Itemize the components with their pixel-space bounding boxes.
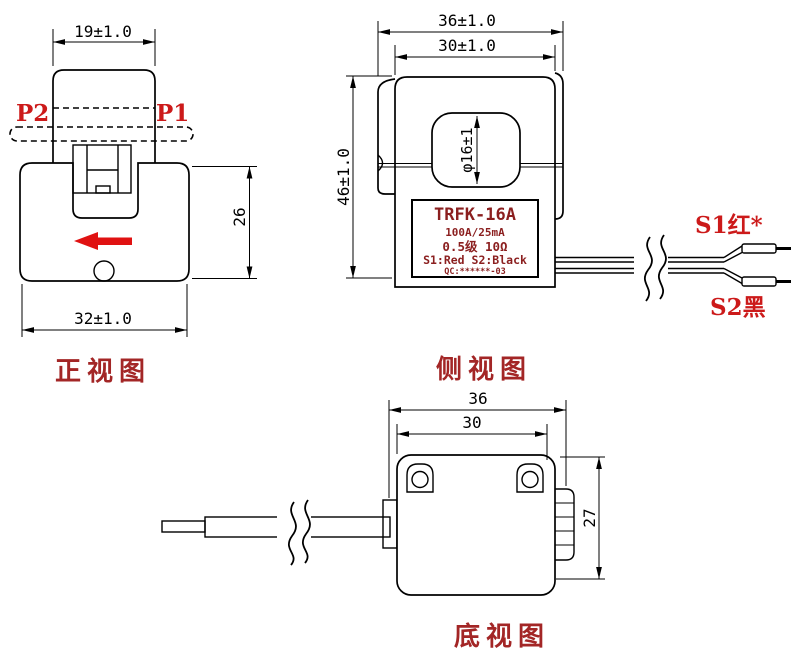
terminal-label-p2: P2 [16, 100, 49, 127]
dim-hole-text: φ16±1 [458, 127, 476, 172]
nameplate-model: TRFK-16A [434, 205, 516, 225]
nameplate: TRFK-16A 100A/25mA 0.5级 10Ω S1:Red S2:Bl… [412, 200, 538, 277]
dim-side-body-width-text: 30±1.0 [438, 36, 496, 55]
dim-bottom-body-width-text: 30 [462, 413, 481, 432]
dim-front-top-width-text: 19±1.0 [74, 22, 132, 41]
hinge-ribs [555, 489, 574, 560]
dim-bottom-overall-width-text: 36 [468, 389, 487, 408]
dim-side-height-text: 46±1.0 [334, 148, 353, 206]
dim-bottom-body-width: 30 [397, 413, 547, 460]
dim-front-bottom-width: 32±1.0 [22, 284, 187, 337]
dim-bottom-height-text: 27 [580, 508, 599, 527]
wire-label-s2: S2黑 [710, 294, 766, 321]
dim-front-height: 26 [192, 167, 257, 279]
cable-tip [162, 521, 205, 532]
side-hole-outline [432, 113, 520, 187]
dim-front-height-text: 26 [230, 207, 249, 226]
drawing-canvas: 19±1.0 P2 P1 26 32±1.0 正视图 [0, 0, 800, 664]
lead-wires [555, 235, 791, 301]
nameplate-qc: QC:******-03 [444, 267, 505, 277]
terminal-s1 [742, 244, 776, 253]
side-view-group: φ16±1 TRFK-16A 100A/25mA 0.5级 10Ω S1:Red… [334, 11, 791, 385]
terminal-s2 [742, 277, 776, 286]
front-view-title: 正视图 [55, 357, 151, 387]
wire-label-s1: S1红* [695, 212, 763, 239]
dim-side-body-width: 30±1.0 [395, 36, 555, 75]
side-right-flange [555, 73, 563, 219]
wire-break-symbol [645, 237, 652, 301]
side-view-title: 侧视图 [436, 355, 532, 385]
dim-front-bottom-width-text: 32±1.0 [74, 309, 132, 328]
terminal-label-p1: P1 [156, 100, 189, 127]
dim-side-overall-width-text: 36±1.0 [438, 11, 496, 30]
side-left-flange [378, 79, 395, 194]
nameplate-rating: 100A/25mA [445, 226, 505, 239]
bottom-view-group: 36 30 27 底视图 [162, 389, 605, 652]
nameplate-wiring: S1:Red S2:Black [423, 253, 527, 267]
front-view-group: 19±1.0 P2 P1 26 32±1.0 正视图 [10, 22, 257, 387]
nameplate-accuracy: 0.5级 10Ω [442, 239, 507, 254]
clamp-top-outline [53, 70, 155, 163]
front-body-outline [20, 163, 189, 281]
dim-front-top-width: 19±1.0 [53, 22, 155, 66]
technical-drawing-svg: 19±1.0 P2 P1 26 32±1.0 正视图 [0, 0, 800, 664]
bottom-view-title: 底视图 [454, 621, 550, 652]
bottom-body-outline [397, 455, 555, 595]
wire-break-symbol2 [659, 235, 666, 299]
